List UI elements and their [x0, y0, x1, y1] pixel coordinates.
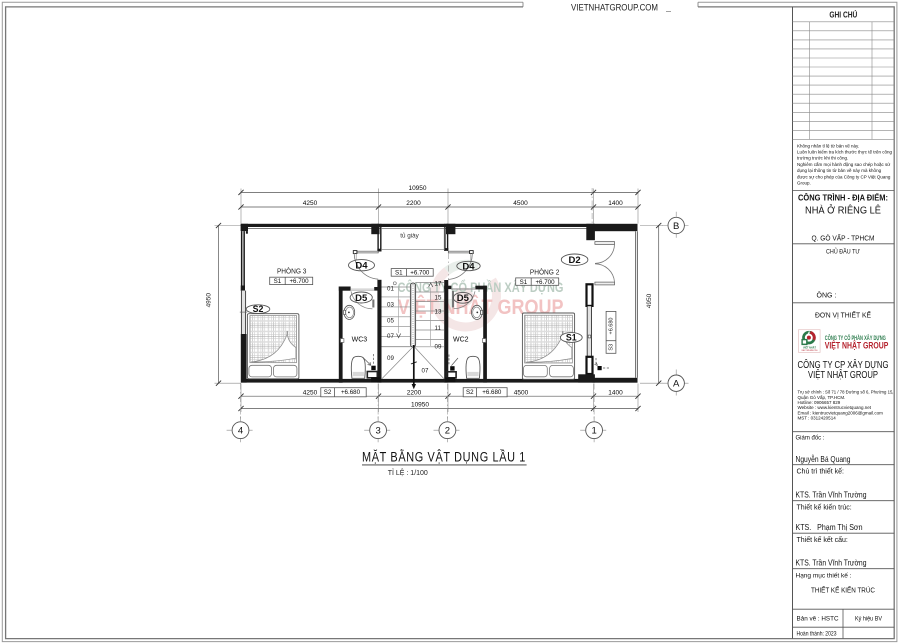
svg-text:PHÒNG 3: PHÒNG 3	[277, 266, 307, 275]
svg-text:B: B	[673, 221, 679, 232]
svg-text:4950: 4950	[206, 293, 213, 308]
svg-text:PHÁT TRIỂN BỀN VỮNG: PHÁT TRIỂN BỀN VỮNG	[802, 349, 818, 352]
svg-text:15: 15	[435, 295, 442, 302]
svg-text:Hạng mục thiết kế :: Hạng mục thiết kế :	[796, 571, 852, 580]
svg-text:Hoàn thành: 2023: Hoàn thành: 2023	[797, 632, 838, 638]
svg-text:WC3: WC3	[352, 336, 368, 343]
svg-text:Thiết kế kết cấu:: Thiết kế kết cấu:	[797, 535, 848, 544]
svg-text:4250: 4250	[303, 389, 318, 396]
svg-text:Nguyễn Bá Quang: Nguyễn Bá Quang	[796, 454, 851, 464]
svg-text:1400: 1400	[608, 200, 623, 207]
svg-text:S2: S2	[253, 304, 264, 314]
svg-text:17: 17	[435, 280, 442, 287]
svg-text:Group.: Group.	[797, 181, 811, 186]
svg-text:KTS. Trần Vĩnh Trường: KTS. Trần Vĩnh Trường	[796, 558, 867, 568]
svg-text:trường trước khi thi công.: trường trước khi thi công.	[797, 156, 848, 161]
svg-text:A: A	[673, 379, 680, 390]
svg-text:Nghiêm cấm mọi hành động sao c: Nghiêm cấm mọi hành động sao chép hoặc s…	[797, 161, 890, 167]
svg-text:2200: 2200	[406, 200, 421, 207]
svg-text:Thiết kế kiến trúc:: Thiết kế kiến trúc:	[797, 503, 852, 512]
svg-text:Bản vẽ : HSTC: Bản vẽ : HSTC	[797, 616, 839, 623]
svg-text:TỈ LỆ : 1/100: TỈ LỆ : 1/100	[388, 468, 428, 477]
svg-text:Chủ trì thiết kế:: Chủ trì thiết kế:	[797, 467, 845, 476]
svg-text:MẶT BẰNG VẬT DỤNG LẦU 1: MẶT BẰNG VẬT DỤNG LẦU 1	[362, 450, 526, 465]
svg-text:2200: 2200	[407, 389, 422, 396]
svg-text:1: 1	[591, 426, 596, 437]
svg-text:+6.700: +6.700	[289, 278, 309, 285]
svg-text:4: 4	[238, 426, 243, 437]
svg-text:VIETNHATGROUP.COM: VIETNHATGROUP.COM	[571, 2, 658, 13]
svg-text:S3: S3	[608, 344, 614, 351]
svg-text:4500: 4500	[513, 200, 528, 207]
svg-text:WC2: WC2	[453, 336, 469, 343]
svg-text:KTS. Phạm Thị Sơn: KTS. Phạm Thị Sơn	[796, 522, 863, 532]
svg-text:S1: S1	[395, 270, 403, 277]
svg-text:S2: S2	[466, 389, 474, 396]
svg-text:NHÀ Ở RIÊNG LÊ: NHÀ Ở RIÊNG LÊ	[805, 204, 881, 217]
svg-text:4250: 4250	[303, 200, 318, 207]
svg-text:Trụ sở chính : Số 71 / 78 Đườn: Trụ sở chính : Số 71 / 78 Đường số 6, Ph…	[798, 389, 894, 395]
svg-text:S1: S1	[520, 279, 528, 286]
svg-text:D4: D4	[355, 261, 368, 272]
svg-text:13: 13	[435, 309, 442, 316]
svg-text:CHỦ ĐẦU TƯ: CHỦ ĐẦU TƯ	[826, 246, 860, 256]
svg-text:+6.680: +6.680	[482, 389, 502, 396]
svg-text:VIỆT NHẬT GROUP: VIỆT NHẬT GROUP	[825, 339, 889, 350]
svg-text:03: 03	[387, 302, 394, 309]
svg-text:KTS. Trần Vĩnh Trường: KTS. Trần Vĩnh Trường	[796, 490, 867, 500]
svg-text:S1: S1	[274, 278, 282, 285]
svg-text:01: 01	[387, 286, 394, 293]
svg-text:D5: D5	[355, 293, 368, 304]
svg-text:D2: D2	[569, 255, 581, 266]
svg-text:S1: S1	[566, 333, 577, 343]
svg-text:Ký hiệu BV: Ký hiệu BV	[855, 616, 883, 623]
svg-text:CÔNG TRÌNH - ĐỊA ĐIỂM:: CÔNG TRÌNH - ĐỊA ĐIỂM:	[798, 192, 888, 203]
svg-text:+6.680: +6.680	[608, 318, 614, 335]
svg-text:+6.700: +6.700	[535, 279, 555, 286]
svg-text:tủ giày: tủ giày	[400, 231, 419, 239]
svg-text:05: 05	[387, 318, 394, 325]
svg-text:10950: 10950	[408, 185, 426, 192]
svg-text:09: 09	[435, 344, 442, 351]
svg-text:ĐƠN VỊ THIẾT KẾ: ĐƠN VỊ THIẾT KẾ	[815, 310, 871, 320]
svg-text:10950: 10950	[411, 401, 429, 408]
svg-text:4500: 4500	[514, 389, 529, 396]
svg-text:2: 2	[445, 426, 450, 437]
svg-text:07: 07	[387, 333, 394, 340]
svg-text:1400: 1400	[608, 389, 623, 396]
svg-text:D4: D4	[462, 261, 475, 272]
svg-text:4950: 4950	[646, 293, 653, 308]
svg-text:được sự cho phép của Công ty C: được sự cho phép của Công ty CP Việt Qua…	[797, 173, 891, 179]
svg-text:ÔNG :: ÔNG :	[817, 291, 837, 300]
svg-text:D5: D5	[457, 293, 470, 304]
svg-text:dụng lại thông tin từ bản vẽ n: dụng lại thông tin từ bản vẽ này mà khôn…	[797, 168, 882, 173]
svg-text:09: 09	[387, 355, 394, 362]
svg-text:GHI CHÚ: GHI CHÚ	[829, 11, 857, 20]
svg-text:+6.700: +6.700	[410, 270, 430, 277]
svg-text:PHÒNG 2: PHÒNG 2	[530, 267, 560, 276]
svg-text:Luôn luôn kiểm tra kích thước: Luôn luôn kiểm tra kích thước thực tế tr…	[797, 149, 893, 155]
svg-text:3: 3	[375, 426, 380, 437]
svg-text:Không nhân tỉ lệ từ bản vẽ này: Không nhân tỉ lệ từ bản vẽ này.	[797, 142, 859, 148]
svg-text:Q. GÒ VẤP - TPHCM: Q. GÒ VẤP - TPHCM	[812, 233, 875, 243]
svg-text:S2: S2	[324, 389, 332, 396]
svg-text:11: 11	[435, 325, 442, 332]
svg-text:VIỆT NHẬT GROUP: VIỆT NHẬT GROUP	[808, 370, 878, 381]
svg-text:07: 07	[422, 368, 429, 375]
svg-text:Giám đốc :: Giám đốc :	[796, 436, 825, 442]
svg-text:MST : 0312420514: MST : 0312420514	[798, 416, 837, 421]
svg-text:+6.680: +6.680	[341, 389, 361, 396]
svg-text:THIẾT KẾ KIẾN TRÚC: THIẾT KẾ KIẾN TRÚC	[811, 585, 875, 595]
